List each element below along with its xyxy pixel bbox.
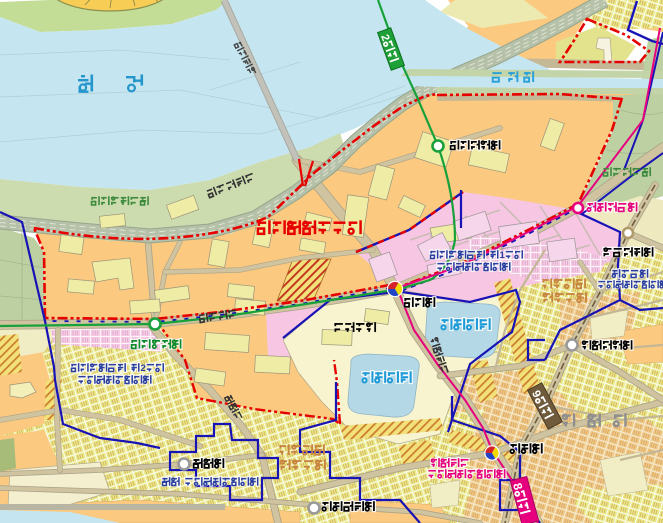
svg-text:2: 2	[140, 363, 145, 374]
svg-text:1: 1	[499, 250, 505, 261]
